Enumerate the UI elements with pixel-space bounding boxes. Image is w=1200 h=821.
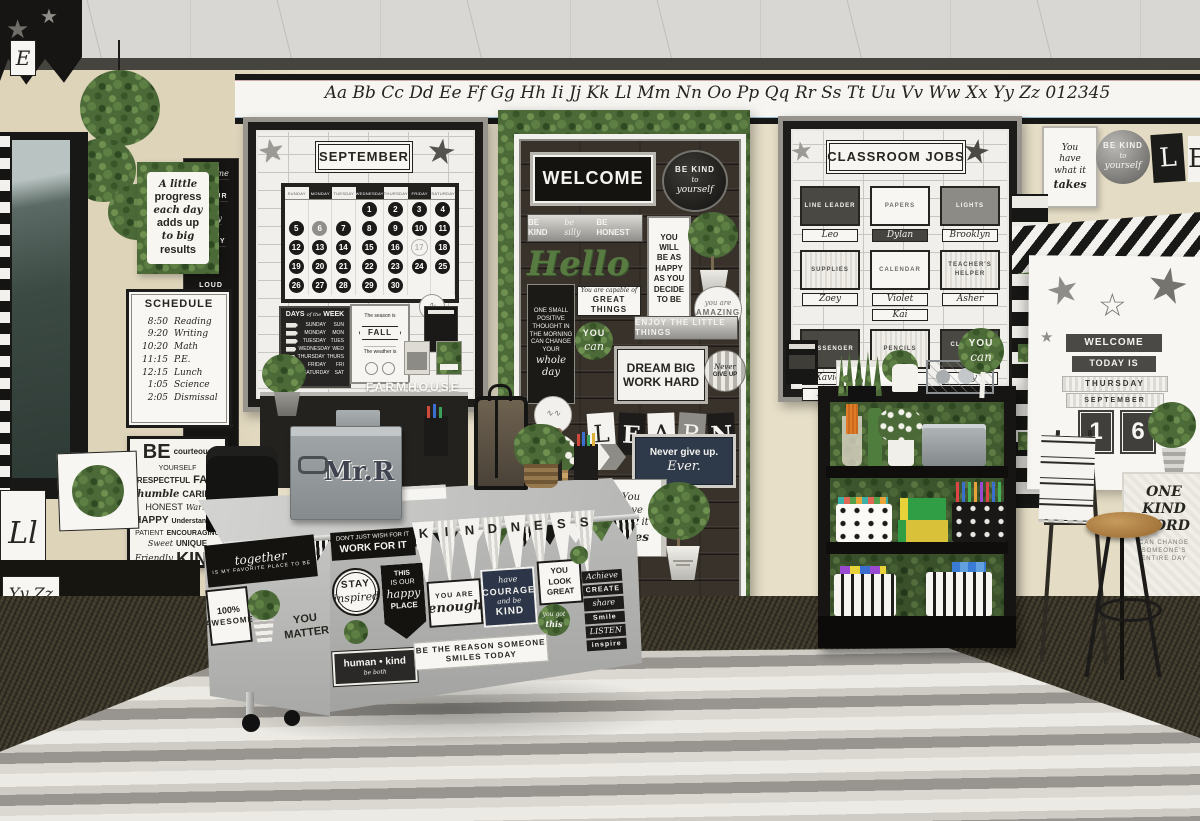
one-small-thought-card: ONE SMALLPOSITIVETHOUGHT INTHE MORNINGCA… [527,284,575,404]
calendar-date: 15 [362,240,377,255]
caster-wheel [284,710,300,726]
text-line: to [691,176,698,185]
word-list-tag: LISTEN [585,624,626,639]
dream-big-frame: DREAM BIGWORK HARD [614,346,708,404]
calendar-cell: 23 [384,257,408,276]
text-line: results [160,244,196,258]
text-line: you got [543,611,566,619]
text-line: PLACE [390,600,418,612]
pot-script-line [673,560,693,562]
calendar-date: 29 [362,278,377,293]
you-are-enough-card: YOU AREenough [426,578,483,628]
schedule-subject: P.E. [174,355,191,367]
september-title-card: SEPTEMBER [315,141,413,173]
calendar-cell: 17 [408,238,432,257]
calendar-cell: 1 [356,200,384,219]
window [0,132,88,499]
right-letter-cards: LE [1152,134,1200,186]
be-word: humble [137,489,179,502]
calendar-date: 26 [289,278,304,293]
text-line: POSITIVE [537,316,565,324]
student-name-tag: Zoey [802,293,858,306]
days-chart-title: DAYS of the WEEK [286,310,344,319]
be-word: RESPECTFUL [137,476,190,486]
job-assignment: CALENDARVioletKai [870,250,930,322]
striped-basket [834,574,896,616]
awesome-card: 100%AWESOME [205,586,253,646]
calendar-cell: 11 [431,219,455,238]
marker [433,404,436,418]
calendar-cell [431,276,455,295]
calendar-date: 4 [435,202,450,217]
text-line: Never [714,363,736,372]
bin-label: Mr.R [324,459,395,486]
blue-erasers [952,562,986,572]
days-title-c: WEEK [323,310,344,319]
calendar-cell: 2 [384,200,408,219]
job-card: SUPPLIES [800,250,860,290]
calendar-cell: 19 [285,257,309,276]
calendar-date: 21 [336,259,351,274]
day-abbrev: SAT [335,370,344,376]
calendar-cell [285,200,309,219]
text-line: You [1062,143,1078,155]
crayola-box [898,520,948,542]
jobs-you-can-circle: YOUcan [958,328,1004,374]
schedule-poster: SCHEDULE 8:50Reading9:20Writing10:20Math… [126,289,232,428]
envelope-card [404,341,430,375]
arrow-tag-icon [286,331,298,336]
calendar-cell: 3 [408,200,432,219]
crayola-box [900,498,946,520]
text-line: BE AS [657,253,681,263]
board-topiary-ball [688,212,738,258]
word-list: AchieveCREATEshareSmileLISTENinspire [582,569,631,642]
schedule-row: 2:05Dismissal [142,393,222,405]
gray-ball [936,370,950,384]
work-for-it-sign: DON'T JUST WISH FOR ITWORK FOR IT [330,527,416,561]
day-abbrev: SUN [333,322,344,328]
calendar-cell: 10 [408,219,432,238]
text-line: GREAT [547,586,575,598]
text-line: YOUR [542,347,559,355]
window-checker-trim [0,132,10,499]
calendar-cell: 27 [309,276,333,295]
calendar-date: 22 [362,259,377,274]
text-line: to [1119,152,1126,161]
text-line: DREAM BIG [627,361,696,375]
be-word: UNIQUE [176,539,207,549]
student-name-tag: Asher [942,293,998,306]
schedule-row: 12:15Lunch [142,368,222,380]
season-label: The season is [364,313,395,319]
text-line: what it [1054,166,1086,178]
calendar-date: 9 [388,221,403,236]
calendar-date: 19 [289,259,304,274]
text-line: adds up [157,217,199,231]
schedule-title: SCHEDULE [145,298,214,312]
schedule-time: 10:20 [142,342,168,354]
text-line: GIVE UP [713,372,737,380]
today-month-text: SEPTEMBER [1084,396,1146,405]
calendar-cell: 18 [431,238,455,257]
welcome-sign: WELCOME [530,152,656,206]
schedule-row: 8:50Reading [142,317,222,329]
schedule-row: 10:20Math [142,342,222,354]
calendar-cell: 4 [431,200,455,219]
marker [587,435,590,446]
calendar-date: 24 [412,259,427,274]
text-line: THE MORNING [530,332,573,340]
text-line: ENTIRE DAY [1141,556,1187,564]
great-things-card: You are capable ofGREAT THINGS [577,286,641,316]
calendar-day-header: SUNDAY [285,187,309,200]
weather-circle-icon [382,362,395,375]
schedule-time: 12:15 [142,368,168,380]
text-line: WILL [659,243,679,253]
marker [582,432,585,446]
calendar-day-header: TUESDAY [332,187,356,200]
today-month-tag: SEPTEMBER [1066,393,1164,408]
woven-basket [524,464,558,488]
day-name: WEDNESDAY [298,346,330,352]
colored-pens [956,482,1004,502]
text-line: whole [536,355,566,368]
pocket-slot [789,355,815,369]
jobs-title: CLASSROOM JOBS [827,149,965,165]
word-list-tag: CREATE [583,583,624,597]
calendar-grid: SUNDAYMONDAYTUESDAYWEDNESDAYTHURSDAYFRID… [285,187,455,295]
schedule-time: 9:20 [142,329,168,341]
be-word: PATIENT [135,529,164,538]
days-chart-row: SUNDAYSUN [286,321,344,329]
calendar-cell [332,200,356,219]
calendar-date: 6 [312,221,327,236]
today-topiary-ball [1148,402,1196,448]
job-assignment: LIGHTSBrooklyn [940,186,1000,242]
calendar-date: 17 [411,239,428,256]
text-line: to big [162,231,195,244]
weather-circle-icon [365,362,378,375]
stool-ring [1098,598,1162,622]
today-welcome-tag: WELCOME [1066,334,1162,352]
calendar-cell: 21 [332,257,356,276]
text-line: takes [1053,178,1086,192]
text-line: inspired [333,590,379,607]
pot-script-line [676,564,690,566]
mr-r-bin: Mr.R [290,426,402,520]
text-line: Ever. [667,459,700,475]
lantern-bar [495,400,498,478]
text-line: A little [159,179,197,192]
stool-seat [1086,512,1162,538]
polka-dot-basket-white [836,504,892,542]
day-name: SUNDAY [300,322,331,328]
day-abbrev: THURS [327,354,344,360]
calendar-cell: 24 [408,257,432,276]
schedule-time: 8:50 [142,317,168,329]
schedule-time: 11:15 [142,355,168,367]
text-line: THOUGHT IN [532,324,569,332]
you-matter-text: YOUMATTER [285,596,328,658]
job-card: TEACHER'S HELPER [940,250,1000,290]
calendar-date: 8 [362,221,377,236]
envelope-pocket [407,352,427,370]
word-list-tag: share [584,596,625,611]
september-title: SEPTEMBER [319,149,409,165]
calendar-date: 5 [289,221,304,236]
jobs-pocket-chart [786,340,818,384]
calendar-cell: 9 [384,219,408,238]
moss-dot [570,546,588,564]
text-line: enough [428,598,483,617]
text-line: have [1059,154,1081,166]
student-name-tag: Dylan [872,229,928,242]
jobs-title-card: CLASSROOM JOBS [826,140,966,174]
text-line: this [545,619,562,629]
bookshelf [818,386,1016,648]
days-title-a: DAYS [286,310,305,319]
days-chart-row: MONDAYMON [286,329,344,337]
text-line: ONE SMALL [534,308,568,316]
calendar-cell: 12 [285,238,309,257]
calendar-cell: 28 [332,276,356,295]
be-the-reason-text: BE THE REASON SOMEONE SMILES TODAY [414,637,547,667]
calendar: SUNDAYMONDAYTUESDAYWEDNESDAYTHURSDAYFRID… [281,183,459,303]
calendar-cell [408,276,432,295]
calendar-date: 28 [336,278,351,293]
right-be-kind-circle: BE KINDtoyourself [1096,130,1150,184]
orange-pencils [846,404,858,434]
hutch-plant [262,354,306,394]
job-assignment: SUPPLIESZoey [800,250,860,322]
calendar-date: 12 [289,240,304,255]
calendar-date: 14 [336,240,351,255]
calendar-date: 13 [312,240,327,255]
text-line: WORK HARD [623,375,699,389]
student-name-tag: Leo [802,229,858,242]
shelf-base [818,616,1016,648]
one-kind-word-poster: ONEKINDWORD CAN CHANGESOMEONE'SENTIRE DA… [1122,472,1200,610]
greenery-card-label [440,364,458,370]
job-assignment: TEACHER'S HELPERAsher [940,250,1000,322]
moss-wreath-card [57,451,140,532]
text-line: be silly [564,218,592,239]
text-line: BE KIND [528,218,560,239]
day-abbrev: MON [332,330,344,336]
job-card: CALENDAR [870,250,930,290]
be-word: HONEST [145,502,183,514]
arrow-tag-icon [286,339,298,344]
word-list-tag: Smile [585,611,626,625]
calendar-date: 1 [362,202,377,217]
weather-label: The weather is [364,346,397,355]
human-kind-sign: human • kindbe both [332,648,418,686]
progress-poster-text: A littleprogresseach dayadds upto bigres… [147,172,209,264]
calendar-date: 23 [388,259,403,274]
marker [427,406,430,418]
marker [592,433,595,446]
schedule-time: 2:05 [142,393,168,405]
topiary-print-ball [248,590,280,620]
today-star-icon [1040,328,1053,346]
tag-squiggle: ∿∿ [545,409,560,421]
schedule-row: 9:20Writing [142,329,222,341]
text-line: TO BE [657,295,681,305]
text-line: YOU [969,338,994,351]
job-assignment: PAPERSDylan [870,186,930,242]
text-line: yourself [1105,161,1142,173]
text-line: YOU [583,328,606,340]
text-line: can [970,350,992,364]
glass-vase-pencils [842,416,862,466]
today-star-outline-icon [1098,286,1127,324]
clothespins [838,497,888,504]
calendar-date: 30 [388,278,403,293]
kindness-pennant: I [435,519,462,586]
schedule-subject: Math [174,342,198,354]
right-takes-poster: Youhavewhat ittakes [1042,126,1098,208]
calendar-cell: 14 [332,238,356,257]
text-line: BE KIND [675,165,715,175]
calendar-date: 27 [312,278,327,293]
text-line: CAN CHANGE [1139,540,1189,548]
alphabet-text: Aa Bb Cc Dd Ee Ff Gg Hh Ii Jj Kk Ll Mm N… [235,80,1200,106]
calendar-cell: 25 [431,257,455,276]
schedule-subject: Writing [174,329,208,341]
text-line: MATTER [284,624,330,643]
calendar-date: 18 [435,240,450,255]
day-name: TUESDAY [300,338,329,344]
calendar-cell: 6 [309,219,333,238]
text-line: can [584,340,604,354]
calendar-cell: 20 [309,257,333,276]
arrow-tag-icon [286,347,296,352]
text-line: BE HONEST [596,218,642,239]
calendar-cell: 22 [356,257,384,276]
courage-card: haveCOURAGEand beKIND [480,566,538,628]
calendar-day-header: THURSDAY [384,187,408,200]
polka-dot-bin-black [952,502,1006,542]
text-line: KIND [495,605,524,619]
student-name-tag: Brooklyn [942,229,998,242]
pocket-slot [789,344,815,349]
corner-letter-card: E [10,40,36,76]
today-is-tag: TODAY IS [1072,356,1156,372]
calendar-date: 11 [435,221,450,236]
calendar-cell: 7 [332,219,356,238]
happy-decide-card: YOUWILLBE ASHAPPYAS YOUDECIDETO BE [647,216,691,322]
kind-silly-honest-strip: BE KINDbe sillyBE HONEST [527,214,643,242]
caster-wheel [242,714,260,732]
job-card: LINE LEADER [800,186,860,226]
one-kind-word-small: CAN CHANGESOMEONE'SENTIRE DAY [1139,540,1189,563]
days-title-b: of the [307,312,322,318]
enjoy-strip: ENJOY THE LITTLE THINGS [634,316,738,340]
be-word: BE [143,441,171,463]
you-got-this-circle: you gotthis [538,604,570,636]
text-line: ONE [1146,484,1182,501]
topiary-trunk [711,256,714,272]
hanging-topiary-ball [80,70,160,146]
schedule-subject: Lunch [174,368,202,380]
letter-text: Ll [8,519,38,549]
marker-cup [424,416,448,456]
calendar-day-header: WEDNESDAY [356,187,384,200]
basket-contents [840,566,886,574]
be-word: Sweet [148,539,173,549]
calendar-date: 3 [412,202,427,217]
letter-card: L [1150,133,1185,183]
calendar-date: 25 [435,259,450,274]
days-chart-row: TUESDAYTUES [286,337,344,345]
today-day-text: THURSDAY [1085,379,1145,389]
you-can-circle: YOUcan [575,322,613,360]
galvanized-basket [922,424,986,466]
shelf-board [826,466,1008,478]
shelf-board [826,542,1008,554]
progress-poster: A littleprogresseach dayadds upto bigres… [137,162,219,274]
text-line: day [542,367,560,380]
today-is-text: TODAY IS [1089,358,1138,370]
enjoy-text: ENJOY THE LITTLE THINGS [635,318,737,339]
calendar-cell: 26 [285,276,309,295]
text-line: each day [154,205,203,218]
schedule-time: 1:05 [142,380,168,392]
text-line: progress [154,191,201,205]
calendar-date: 20 [312,259,327,274]
weather-icons [365,362,395,375]
calendar-date: 2 [388,202,403,217]
desk-trim-pennant [613,519,640,541]
bin-handle [298,456,328,474]
calendar-cell: 8 [356,219,384,238]
greenery-card [436,341,462,375]
kindness-letter: N [464,522,478,585]
calendar-cell: 29 [356,276,384,295]
white-plant-pot [888,440,914,466]
september-star-icon [423,130,459,174]
text-line: SOMEONE'S [1142,548,1187,556]
calendar-cell [309,200,333,219]
text-line: Never give up. [650,447,718,460]
text-line: CAN CHANGE [531,339,571,347]
text-line: AS YOU [654,274,685,284]
text-line: You are capable of [581,287,637,295]
text-line: yourself [677,185,714,197]
window-glass [12,140,70,478]
corner-letter: E [16,47,31,69]
today-welcome-text: WELCOME [1084,337,1143,350]
striped-towel [1038,435,1095,524]
be-word: YOURSELF [159,464,197,473]
letter-card: E [1188,136,1200,182]
text-line: AWESOME [205,614,255,629]
word-list-tag: Achieve [582,569,623,584]
job-card: PAPERS [870,186,930,226]
ceiling [0,0,1200,62]
calendar-cell: 30 [384,276,408,295]
text-line: BE KIND [1103,141,1143,151]
board-topiary-ball-2 [648,482,710,540]
text-line: be both [364,669,387,678]
job-card: LIGHTS [940,186,1000,226]
calendar-cell: 16 [384,238,408,257]
schedule-subject: Science [174,380,210,392]
day-name: THURSDAY [298,354,325,360]
classroom-photo: E Aa Bb Cc Dd Ee Ff Gg Hh Ii Jj Kk Ll Mm… [0,0,1200,821]
marker [577,434,580,446]
